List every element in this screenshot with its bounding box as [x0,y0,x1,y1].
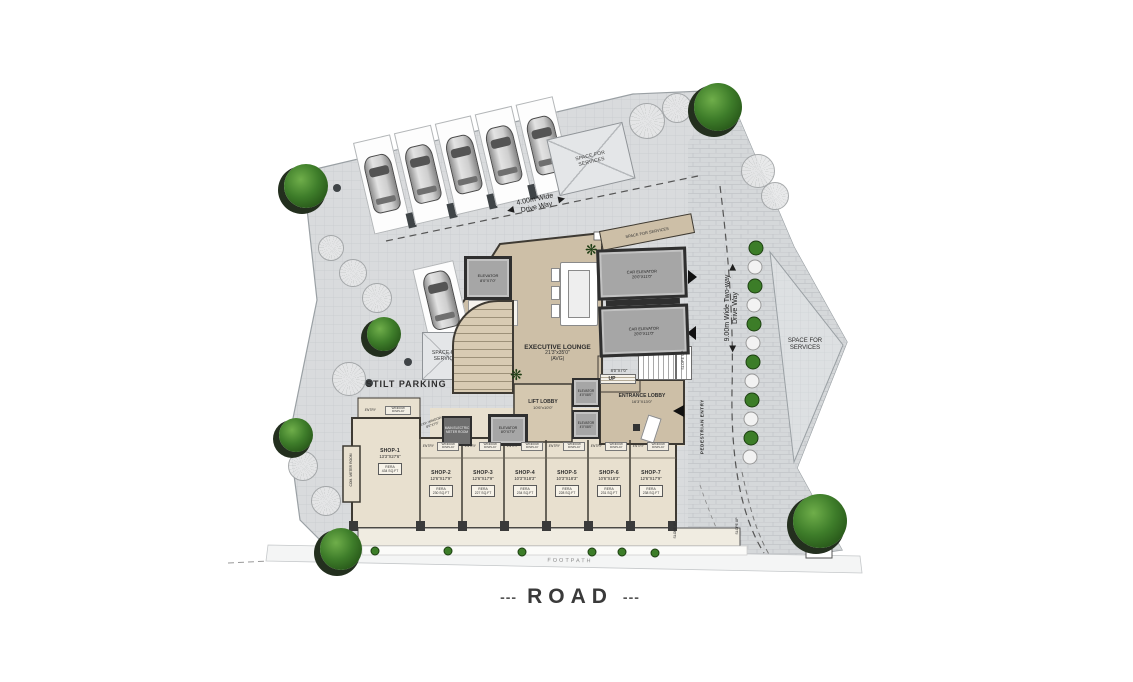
driveway-right-label: ◀ 9.00m Wide Two-wayDrive Way ▶ [724,233,740,383]
window-display-label: WINDOW DISPLAY [605,442,627,451]
shopfront-strip: ENTRY WINDOW DISPLAY [589,442,629,451]
window-display-label: WINDOW DISPLAY [647,442,669,451]
rera-box: RERA230 SQ.FT [429,485,454,497]
car-icon [484,123,525,186]
window-display-label: WINDOW DISPLAY [563,442,585,451]
room-dims: 4'0"X8'0" [578,425,594,429]
executive-lounge-label: EXECUTIVE LOUNGE 21'3"x35'0" (AVG) [500,344,615,363]
shop-dims: 10'3"X18'3" [547,476,587,481]
entry-label: ENTRY [591,444,602,448]
entrance-lobby-label: ENTRANCE LOBBY 16'3"X13'0" [606,394,678,404]
shop-dims: 12'6"X17'9" [421,476,461,481]
shop-4-label: SHOP-4 10'3"X18'3" RERA234 SQ.FT [505,470,545,499]
shop-dims: 10'3"X18'3" [505,476,545,481]
arrow-right-icon: ▶ [557,194,566,204]
driveway-name-label: Drive Way [732,275,740,342]
lounge-table-top [568,270,590,318]
road-label: ROAD [527,585,613,609]
entry-label: ENTRY [465,444,476,448]
room-dims: 20'0"X11'0" [629,330,659,336]
shop-5-label: SHOP-5 10'3"X18'3" RERA228 SQ.FT [547,470,587,499]
slope-up-label: SLOPE UP [682,342,686,378]
rera-box: RERA434 SQ.FT [378,463,403,475]
car-icon [421,269,462,332]
reception-chair [633,424,640,431]
sketch-tree-icon [362,283,392,313]
up-label: UP [602,377,622,383]
room-name: ELEVATOR [578,389,594,393]
sketch-tree-icon [339,259,367,287]
rera-box: RERA238 SQ.FT [639,485,664,497]
road-title: --- ROAD --- [430,585,710,609]
sketch-tree-icon [662,93,692,123]
floor-plan-canvas: SPACE FOR SERVICES SPACE FOR SERVICES SP… [0,0,1133,682]
road-dash: --- [623,589,640,605]
car-icon [443,133,484,196]
shop-dims: 12'6"X17'9" [631,476,671,481]
window-display-label: WINDOW DISPLAY [479,442,501,451]
tree-icon [320,528,362,570]
driveway-width-label: 9.00m Wide Two-way [724,275,732,342]
shopfront-strip: ENTRY WINDOW DISPLAY [421,442,461,451]
shopfront-strip: ENTRY WINDOW DISPLAY [463,442,503,451]
plant-icon: ❋ [510,368,523,383]
site-plan-base [0,0,1133,682]
entry-label: ENTRY [423,444,434,448]
rera-box: RERA234 SQ.FT [513,485,538,497]
plant-icon: ❋ [585,243,598,258]
tree-icon [279,418,313,452]
shopfront-strip: ENTRY WINDOW DISPLAY [631,442,671,451]
lounge-chair [551,286,560,300]
car-icon [362,152,403,215]
entry-label: ENTRY [507,444,518,448]
stilt-parking-label: STILT PARKING [366,379,456,389]
lift-lobby-label: LIFT LOBBY 10'6"x10'0" [516,400,570,410]
slope-up-label: SLOPE UP [674,514,678,546]
shop-1-label: SHOP-1 13'3"X27'6" RERA434 SQ.FT [358,448,422,477]
space-for-services-label: SPACE FOR SERVICES [625,225,669,238]
sketch-tree-icon [288,451,318,481]
shopfront-strip: ENTRY WINDOW DISPLAY [505,442,545,451]
window-display-label: WINDOW DISPLAY [521,442,543,451]
entry-label: ENTRY [549,444,560,448]
shop-3-label: SHOP-3 12'6"X17'9" RERA227 SQ.FT [463,470,503,499]
elevator-small-1: ELEVATOR4'0"X8'0" [572,378,600,407]
sketch-tree-icon [761,182,789,210]
tree-icon [793,494,847,548]
window-display-label: WINDOW DISPLAY [385,406,411,415]
room-dims: 4'0"X8'0" [578,393,594,397]
space-for-services-label: SPACE FOR SERVICES [568,148,614,170]
room-name: ELEVATOR [578,421,594,425]
elevator-top: ELEVATOR8'0"X7'0" [464,256,512,300]
com-meter-room-label: COM. METER ROOM [350,450,354,490]
shopfront-strip: ENTRY WINDOW DISPLAY [547,442,587,451]
car-elevator-1: CAR ELEVATOR20'0"X11'0" [596,246,688,300]
meter-room-label: MAIN ELECTRIC METER ROOM [444,427,470,435]
shop-2-label: SHOP-2 12'6"X17'9" RERA230 SQ.FT [421,470,461,499]
shopfront-strip: ENTRY WINDOW DISPLAY [360,406,416,415]
lounge-chair [551,268,560,282]
room-dims: 20'0"X11'0" [627,273,657,279]
shop-dims: 10'6"X18'3" [589,476,629,481]
room-dims: 8'0"X7'0" [499,430,518,434]
shop-6-label: SHOP-6 10'6"X18'3" RERA231 SQ.FT [589,470,629,499]
sketch-tree-icon [332,362,366,396]
space-for-services-right-label: SPACE FOR SERVICES [776,338,834,352]
lounge-chair [551,304,560,318]
arrow-up-icon: ▶ [728,264,737,271]
rera-box: RERA228 SQ.FT [555,485,580,497]
road-dash: --- [500,589,517,605]
entry-label: ENTRY [633,444,644,448]
rera-box: RERA227 SQ.FT [471,485,496,497]
shop-7-label: SHOP-7 12'6"X17'9" RERA238 SQ.FT [631,470,671,499]
pedestrian-entry-label: PEDESTRIAN ENTRY [699,387,704,467]
entry-label: ENTRY [365,408,376,412]
room-dims: 16'3"X13'0" [606,400,678,405]
window-display-label: WINDOW DISPLAY [437,442,459,451]
tree-icon [694,83,742,131]
arrow-down-icon: ◀ [728,345,737,352]
car-icon [402,142,443,205]
tree-icon [284,164,328,208]
arrow-left-icon: ◀ [506,205,515,215]
elevator-small-2: ELEVATOR4'0"X8'0" [572,410,600,439]
small-room-label: 8'0"X7'0" [600,369,638,374]
sketch-tree-icon [318,235,344,261]
shop-dims: 13'3"X27'6" [358,454,422,459]
room-note: (AVG) [500,357,615,363]
room-dims: 8'0"X7'0" [478,278,499,283]
tree-icon [367,317,401,351]
room-dims: 10'6"x10'0" [516,406,570,411]
sketch-tree-icon [311,486,341,516]
shop-dims: 12'6"X17'9" [463,476,503,481]
rera-box: RERA231 SQ.FT [597,485,622,497]
slope-up-label: SLOPE UP [736,510,740,542]
sketch-tree-icon [629,103,665,139]
